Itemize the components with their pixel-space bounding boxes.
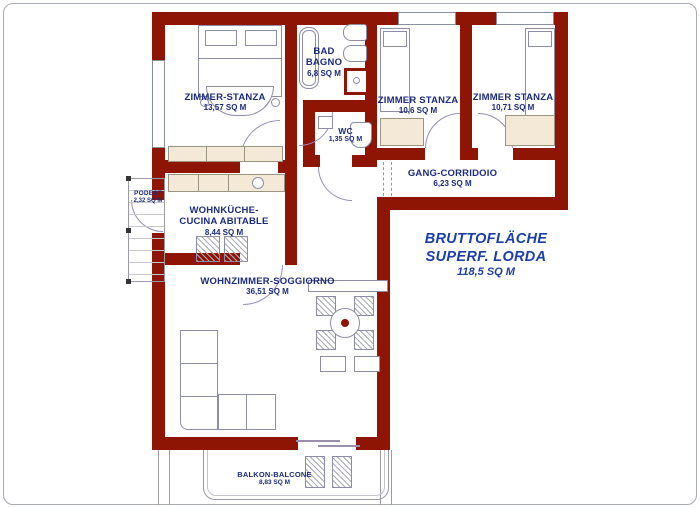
window (398, 12, 456, 25)
wall-segment (460, 148, 478, 160)
chair (354, 330, 374, 350)
cabinet (320, 356, 346, 372)
sliding-door-panel (296, 440, 340, 442)
pillow (528, 31, 552, 47)
room-label-wc: WC 1,35 SQ M (318, 126, 373, 145)
post-marker (126, 176, 131, 181)
wall-segment (513, 148, 568, 160)
planter (332, 456, 352, 488)
wardrobe-divider (244, 147, 245, 161)
wall-segment (377, 148, 425, 160)
wall-segment (390, 197, 568, 210)
pillow (245, 30, 277, 46)
wall-segment (285, 172, 297, 265)
wall-segment (377, 197, 390, 450)
wall-segment (356, 437, 390, 450)
window (496, 12, 554, 25)
wardrobe (168, 146, 283, 162)
toilet (343, 24, 367, 41)
counter-divider (198, 175, 199, 191)
room-label-bedroom-2: ZIMMER STANZA 10,6 SQ M (370, 95, 466, 116)
wall-segment (303, 155, 320, 167)
room-label-kitchen: WOHNKÜCHE- CUCINA ABITABLE 8,44 SQ M (165, 205, 283, 237)
room-label-podest: PODEST 2,32 SQ M (129, 190, 167, 205)
post-marker (126, 228, 131, 233)
pillow (383, 31, 407, 47)
room-label-balcony: BALKON-BALCONE 8,83 SQ M (222, 470, 327, 487)
table-center (341, 319, 349, 327)
stove (196, 236, 220, 262)
sofa-cushion-line (246, 395, 247, 429)
sofa-cushion-line (181, 396, 217, 397)
room-label-bathroom: BAD BAGNO 6,8 SQ M (295, 46, 353, 78)
kitchen-counter (168, 174, 285, 192)
sofa-horizontal-arm (218, 394, 276, 430)
sofa-cushion-line (181, 363, 217, 364)
room-label-bedroom-1: ZIMMER-STANZA 13,57 SQ M (160, 92, 290, 113)
counter-divider (228, 175, 229, 191)
kitchen-sink (252, 177, 264, 189)
pillow (205, 30, 237, 46)
gross-area-annotation: BRUTTOFLÄCHE SUPERF. LORDA 118,5 SQ M (400, 230, 572, 280)
dashed-line (383, 162, 384, 196)
floor-plan: ZIMMER-STANZA 13,57 SQ M BAD BAGNO 6,8 S… (0, 0, 700, 508)
sofa-vertical-arm (180, 330, 218, 430)
wardrobe-divider (206, 147, 207, 161)
appliance (224, 236, 248, 262)
room-label-living: WOHNZIMMER-SOGGIORNO 36,51 SQ M (175, 276, 360, 297)
wardrobe (380, 118, 424, 146)
wall-segment (152, 437, 298, 450)
room-label-bedroom-3: ZIMMER STANZA 10,71 SQ M (465, 92, 561, 113)
wall-segment (352, 155, 377, 167)
sliding-door-panel (318, 445, 360, 447)
shower-drain (353, 77, 360, 84)
wardrobe (505, 115, 555, 146)
room-label-corridor: GANG-CORRIDOIO 6,23 SQ M (390, 168, 515, 189)
blanket-line (199, 58, 281, 59)
wall-segment (152, 12, 165, 60)
balcony-side-wall (158, 450, 170, 505)
post-marker (126, 279, 131, 284)
cabinet (354, 356, 380, 372)
